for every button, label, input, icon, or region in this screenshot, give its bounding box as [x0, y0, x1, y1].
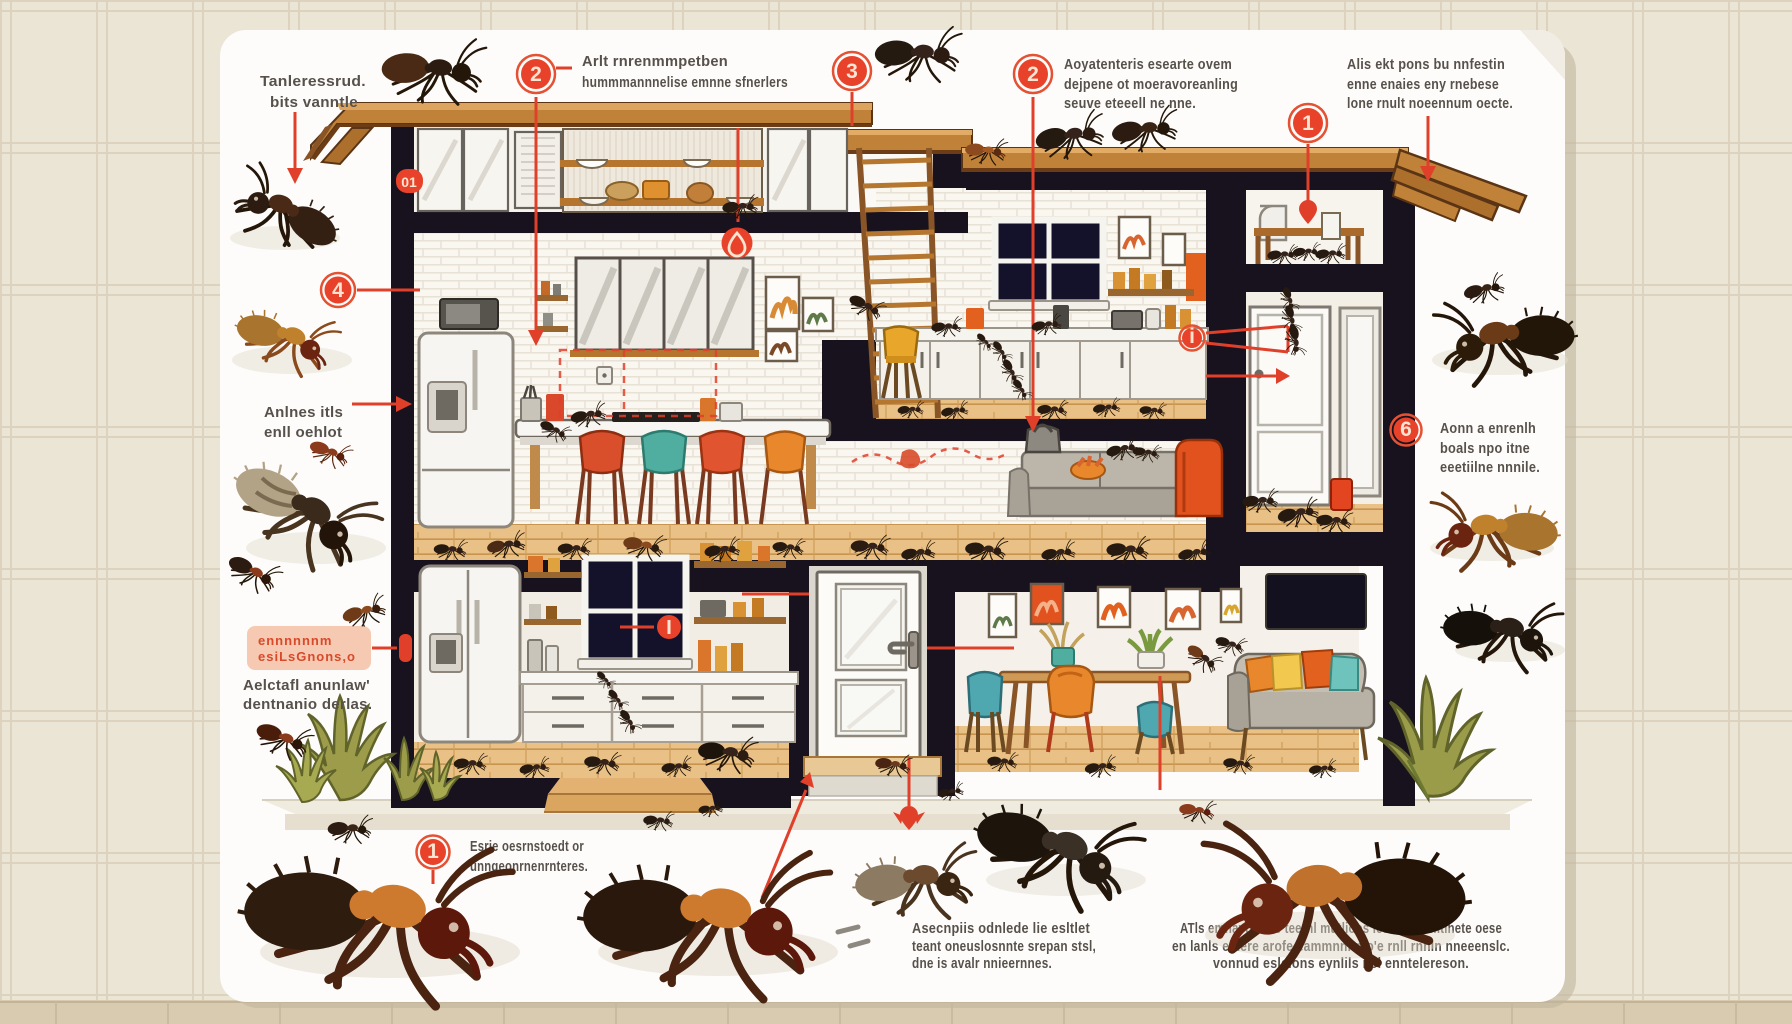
svg-text:2: 2	[530, 63, 542, 86]
svg-text:dentnanio derlas.: dentnanio derlas.	[243, 696, 372, 713]
svg-text:dejpene ot moeravoreanling: dejpene ot moeravoreanling	[1064, 76, 1238, 93]
svg-text:4: 4	[332, 279, 344, 302]
svg-text:esiLsGnons,o: esiLsGnons,o	[258, 649, 356, 664]
svg-text:1: 1	[427, 840, 439, 863]
svg-text:1: 1	[1302, 112, 1314, 135]
svg-text:eeetiilne nnnile.: eeetiilne nnnile.	[1440, 459, 1540, 476]
svg-text:Anlnes itls: Anlnes itls	[264, 404, 343, 421]
svg-text:Arlt rnrenmmpetben: Arlt rnrenmmpetben	[582, 53, 728, 70]
svg-text:2: 2	[1027, 63, 1039, 86]
svg-text:Aoyatenteris esearte ovem: Aoyatenteris esearte ovem	[1064, 56, 1232, 73]
svg-text:ennnnnnm: ennnnnnm	[258, 633, 332, 648]
svg-text:enll oehlot: enll oehlot	[264, 424, 342, 441]
svg-text:bits vanntle: bits vanntle	[270, 94, 358, 111]
svg-text:dne is avalr nnieernnes.: dne is avalr nnieernnes.	[912, 955, 1052, 972]
svg-text:Alis ekt pons bu nnfestin: Alis ekt pons bu nnfestin	[1347, 56, 1505, 73]
svg-text:i: i	[1189, 325, 1195, 348]
svg-text:boals npo itne: boals npo itne	[1440, 440, 1530, 457]
svg-text:Aelctafl anunlaw': Aelctafl anunlaw'	[243, 677, 370, 694]
svg-text:lone rnult noeennum oecte.: lone rnult noeennum oecte.	[1347, 95, 1513, 112]
svg-text:3: 3	[846, 60, 858, 83]
svg-text:Tanleressrud.: Tanleressrud.	[260, 73, 366, 90]
svg-text:Aonn a enrenlh: Aonn a enrenlh	[1440, 420, 1536, 437]
svg-text:01: 01	[401, 174, 417, 190]
svg-text:teant oneuslosnnte srepan stsl: teant oneuslosnnte srepan stsl,	[912, 938, 1096, 955]
svg-text:6: 6	[1400, 418, 1412, 441]
svg-text:enne enaies eny rnebese: enne enaies eny rnebese	[1347, 76, 1499, 93]
svg-text:Asecnpiis odnlede lie esltlet: Asecnpiis odnlede lie esltlet	[912, 920, 1090, 937]
svg-text:hummmannnelise emnne sfnerlers: hummmannnelise emnne sfnerlers	[582, 74, 788, 91]
